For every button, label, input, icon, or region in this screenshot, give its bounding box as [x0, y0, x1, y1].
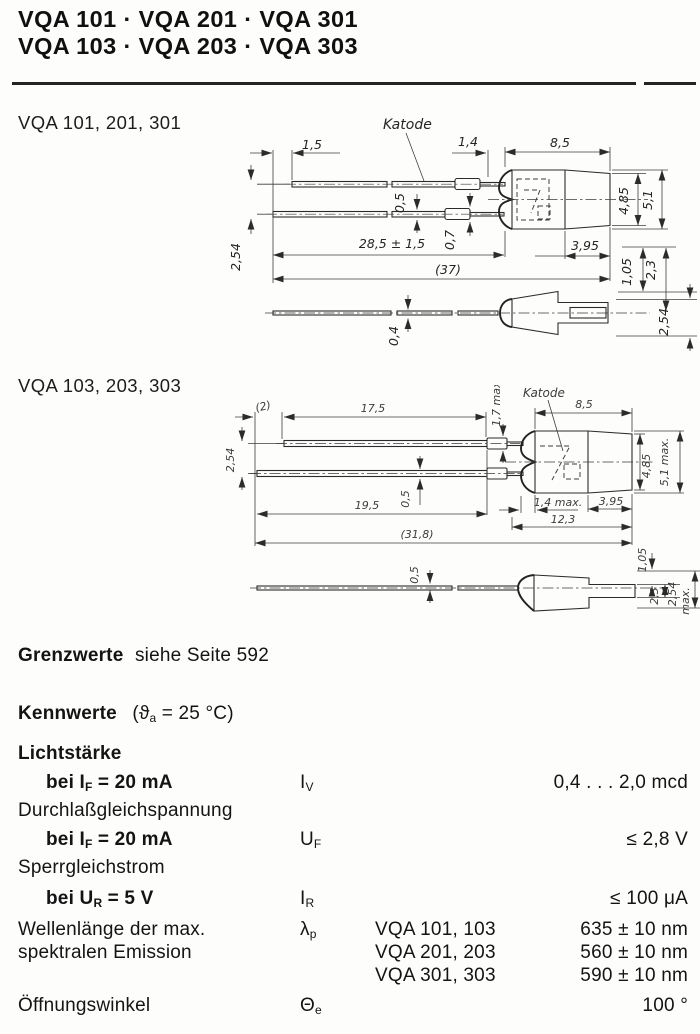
katode-label: Katode — [383, 117, 432, 133]
grenzwerte-heading: Grenzwerte — [18, 645, 123, 666]
svg-text:8,5: 8,5 — [550, 135, 570, 150]
dim-overall-length: (31,8) — [255, 528, 632, 543]
row-wavelength-label1: Wellenlänge der max. — [18, 919, 205, 941]
wavelength-value-2: 560 ± 10 nm — [420, 942, 688, 964]
bottom-lead — [266, 209, 504, 220]
dim-tab-height: 1,7 max — [490, 385, 503, 463]
symbol-theta-e: Θe — [300, 995, 322, 1017]
value-reverse-current: ≤ 100 μA — [420, 888, 688, 910]
svg-text:2,54: 2,54 — [666, 582, 679, 607]
svg-text:12,3: 12,3 — [551, 513, 576, 526]
header-divider-rule — [12, 82, 696, 85]
dim-side-lead-thickness: 0,4 — [386, 295, 408, 346]
row-durchlass-group: Durchlaßgleichspannung — [18, 800, 233, 822]
row-lichtstaerke-condition: bei IF = 20 mA — [46, 772, 173, 794]
kennwerte-heading-line: Kennwerte (ϑa = 25 °C) — [18, 703, 234, 725]
dim-rear-length: 3,95 — [588, 494, 632, 545]
dim-tab-to-body: 1,4 — [452, 134, 488, 177]
svg-text:0,5: 0,5 — [399, 490, 412, 508]
svg-text:2,3: 2,3 — [643, 260, 658, 280]
dim-lead-pitch: 2,54 — [224, 427, 284, 490]
datasheet-page: { "header": { "line1": "VQA 101 · VQA 20… — [0, 0, 700, 1034]
dim-body-length: 8,5 — [505, 135, 610, 171]
kennwerte-condition: (ϑa = 25 °C) — [132, 703, 233, 724]
svg-text:0,5: 0,5 — [408, 566, 421, 584]
svg-text:0,7: 0,7 — [442, 230, 457, 250]
dim-body-total: 12,3 — [512, 513, 632, 530]
dim-bottom-lead-length: 19,5 — [257, 450, 487, 515]
dim-lead-offset: 1,5 — [250, 137, 340, 283]
katode-label: Katode — [523, 386, 565, 400]
top-lead — [276, 438, 523, 449]
svg-text:3,95: 3,95 — [571, 238, 599, 253]
value-luminous-intensity: 0,4 . . . 2,0 mcd — [420, 772, 688, 794]
dim-lead-thickness: 0,5 — [399, 456, 420, 508]
svg-text:5,1 max.: 5,1 max. — [658, 438, 671, 486]
page-title: VQA 101 · VQA 201 · VQA 301 VQA 103 · VQ… — [18, 6, 358, 60]
dim-tab-thickness: 0,7 — [442, 193, 470, 250]
kennwerte-heading: Kennwerte — [18, 703, 117, 724]
row-durchlass-condition: bei IF = 20 mA — [46, 829, 173, 851]
svg-text:2,54: 2,54 — [656, 308, 671, 336]
svg-text:8,5: 8,5 — [575, 398, 593, 411]
symbol-lambda-p: λp — [300, 919, 316, 941]
svg-text:17,5: 17,5 — [361, 402, 386, 415]
svg-text:2,3: 2,3 — [648, 587, 661, 605]
row-wavelength-label2: spektralen Emission — [18, 942, 192, 964]
wavelength-value-3: 590 ± 10 nm — [420, 965, 688, 987]
dim-side-lead-thickness: 0,5 — [408, 566, 430, 603]
drawing2-vqa103-outline: (2) 17,5 1,7 max Katode 8,5 2,54 0,5 19,… — [0, 385, 700, 634]
svg-text:(31,8): (31,8) — [400, 528, 433, 541]
top-lead — [285, 179, 505, 190]
drawing1-vqa101-outline: 1,5 Katode 1,4 8,5 0,5 0,7 2,54 28,5 ± 1… — [0, 110, 700, 372]
page-title-line1: VQA 101 · VQA 201 · VQA 301 — [18, 6, 358, 33]
svg-text:4,85: 4,85 — [616, 187, 631, 215]
grenzwerte-text: siehe Seite 592 — [135, 645, 269, 666]
svg-text:3,95: 3,95 — [599, 495, 624, 508]
grenzwerte-line: Grenzwerte siehe Seite 592 — [18, 645, 269, 667]
dim-rear-length: 3,95 — [535, 231, 610, 259]
svg-text:19,5: 19,5 — [355, 499, 380, 512]
symbol-uf: UF — [300, 829, 321, 851]
svg-text:1,05: 1,05 — [636, 548, 649, 573]
row-sperr-group: Sperrgleichstrom — [18, 857, 165, 879]
svg-text:1,4: 1,4 — [458, 134, 478, 149]
symbol-ir: IR — [300, 888, 314, 910]
svg-text:(2): (2) — [254, 398, 272, 414]
svg-text:0,5: 0,5 — [392, 193, 407, 213]
svg-text:1,4 max.: 1,4 max. — [534, 496, 582, 509]
dim-side-offsets: 1,05 2,3 2,54 max. — [636, 548, 700, 615]
bottom-lead — [250, 468, 523, 479]
katode-callout: Katode — [383, 117, 432, 181]
dim-top-lead-length: 17,5 — [282, 402, 486, 439]
row-sperr-condition: bei UR = 5 V — [46, 888, 154, 910]
dim-dome-depth: 1,4 max. — [499, 495, 582, 513]
svg-text:5,1: 5,1 — [640, 190, 655, 210]
svg-text:0,4: 0,4 — [386, 326, 401, 346]
row-lichtstaerke-group: Lichtstärke — [18, 743, 122, 765]
cathode-flag-hidden — [524, 190, 540, 213]
side-view — [265, 292, 650, 335]
cathode-flag-hidden — [540, 446, 570, 480]
page-title-line2: VQA 103 · VQA 203 · VQA 303 — [18, 33, 358, 60]
value-viewing-angle: 100 ° — [420, 995, 688, 1017]
svg-text:2,54: 2,54 — [228, 243, 243, 271]
dim-offsets-right: 1,05 2,3 — [618, 247, 697, 311]
svg-text:28,5 ± 1,5: 28,5 ± 1,5 — [359, 236, 425, 251]
svg-text:4,85: 4,85 — [640, 454, 653, 479]
dim-side-offset: 2,54 — [616, 284, 697, 351]
svg-text:1,7 max: 1,7 max — [490, 385, 503, 426]
package-body — [505, 431, 655, 493]
svg-text:(37): (37) — [435, 262, 461, 277]
symbol-iv: IV — [300, 772, 314, 794]
dim-body-length: 8,5 — [535, 398, 632, 432]
katode-callout: Katode — [523, 386, 565, 451]
svg-text:1,05: 1,05 — [619, 258, 634, 286]
value-forward-voltage: ≤ 2,8 V — [420, 829, 688, 851]
svg-text:max.: max. — [679, 587, 692, 614]
row-oeffnungswinkel-label: Öffnungswinkel — [18, 995, 150, 1017]
svg-text:2,54: 2,54 — [224, 448, 237, 473]
svg-text:1,5: 1,5 — [302, 137, 322, 152]
side-view — [250, 575, 665, 611]
wavelength-value-1: 635 ± 10 nm — [420, 919, 688, 941]
